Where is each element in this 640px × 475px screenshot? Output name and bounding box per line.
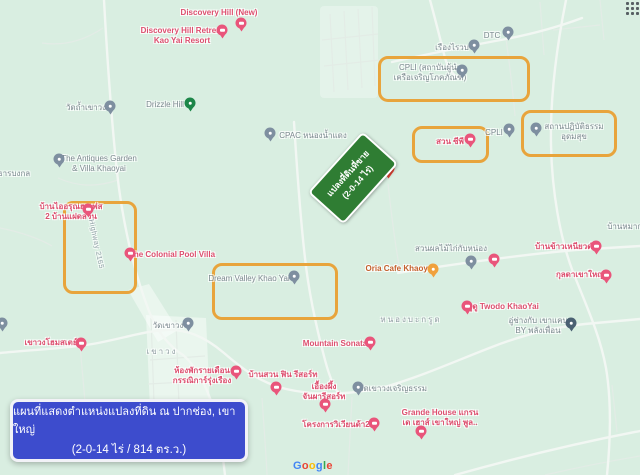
map-label-wat-khao-wong-charoen-tham[interactable]: วัดเขาวงเจริญธรรม (359, 384, 427, 394)
map-label-ban-khao-niao-dam[interactable]: บ้านข้าวเหนียวดำ (535, 242, 597, 252)
map-pin-meditation-center-udomsuk[interactable] (531, 123, 542, 134)
map-label-text: Oria Cafe Khaoyai (366, 264, 435, 274)
map-label-text: เอื้องผึ้ง (303, 382, 346, 392)
map-label-drizzle-hill[interactable]: Drizzle Hill (146, 100, 184, 110)
map-pin-dtc[interactable] (503, 27, 514, 38)
map-pin-discovery-hill-retreat[interactable] (217, 25, 228, 36)
map-pin-monthly-rooms-kannika[interactable] (231, 366, 242, 377)
map-pin-cpli[interactable] (504, 124, 515, 135)
map-label-text: วัดถ้ำเขาวง (66, 103, 106, 113)
map-pin-fruit-orchard[interactable] (466, 256, 477, 267)
google-logo-letter: e (326, 460, 332, 472)
grid-dots-icon[interactable] (626, 2, 639, 15)
map-label-text: Mountain Sonata (303, 339, 367, 349)
map-label-discovery-hill-retreat[interactable]: Discovery Hill RetreatKao Yai Resort (141, 26, 224, 46)
map-pin-cpli-institute[interactable] (457, 65, 468, 76)
map-label-text: CPAC หนองน้ำแดง (279, 131, 347, 141)
map-label-rueang-rai[interactable]: เรืองไรวบ (435, 43, 469, 53)
map-label-text: โครงการวิเวียนด้า2 (302, 420, 370, 430)
map-label-khao-wong-homestay[interactable]: เขาวงโฮมสเตย์ (24, 338, 77, 348)
google-logo-letter: o (309, 460, 316, 472)
map-label-text: เครือเจริญโภคภัณฑ์) (394, 73, 467, 83)
map-label-cpli-institute[interactable]: CPLI (สถาบันผู้นำเครือเจริญโภคภัณฑ์) (394, 63, 467, 83)
map-label-khao-wong-area[interactable]: เขาวง (146, 347, 177, 357)
google-logo-letter: g (316, 460, 323, 472)
map-label-fruit-orchard[interactable]: สวนผลไม้ไก่กับหน่อง (415, 244, 487, 254)
map-label-text: เขาวงโฮมสเตย์ (24, 338, 77, 348)
map-label-text: Drizzle Hill (146, 100, 184, 110)
map-label-text: บ้านข้าวเหนียวดำ (535, 242, 597, 252)
caption-box: แผนที่แสดงตำแหน่งแปลงที่ดิน ณ ปากช่อง, เ… (10, 399, 248, 462)
map-pin-suan-cp[interactable] (465, 134, 476, 145)
caption-line2: (2-0-14 ไร่ / 814 ตร.ว.) (72, 441, 187, 459)
map-label-text: The Colonial Pool Villa (129, 250, 215, 260)
map-label-meditation-center-udomsuk[interactable]: สถานปฏิบัติธรรมอุดมสุข (544, 122, 603, 142)
map-label-text: บ้านหมาก.. (607, 222, 640, 232)
map-label-suan-cp[interactable]: สวน ซีพี (436, 137, 464, 147)
map-pin-wat-khao-wong[interactable] (183, 318, 194, 329)
map-label-wat-tham-khao-wong[interactable]: วัดถ้ำเขาวง (66, 103, 106, 113)
map-label-text: CPLI (485, 128, 503, 138)
map-pin-twodo-khaoyai[interactable] (462, 301, 473, 312)
map-pin-oria-cafe-khaoyai[interactable] (428, 264, 439, 275)
map-label-text: Discovery Hill (New) (181, 8, 258, 18)
google-logo-letter: G (293, 460, 302, 472)
map-label-cpli[interactable]: CPLI (485, 128, 503, 138)
map-pin-rueang-rai[interactable] (469, 40, 480, 51)
map-pin-khao-wong-homestay[interactable] (76, 338, 87, 349)
map-pin-ban-suan-fin-resort[interactable] (271, 382, 282, 393)
map-label-monthly-rooms-kannika[interactable]: ห้องพักรายเดือนกรรณิการ์รุ่งเรือง (173, 366, 231, 386)
map-pin-ban-khao-niao-dam[interactable] (591, 241, 602, 252)
map-pin-viviente-2[interactable] (369, 418, 380, 429)
map-label-text: บ้านสวน ฟิน รีสอร์ท (248, 370, 317, 380)
map-label-text: วัดเขาวง (153, 321, 184, 331)
map-pin-colonial-pool-villa[interactable] (125, 248, 136, 259)
map-label-text: Discovery Hill Retreat (141, 26, 224, 36)
map-label-text: BY พลังเพื่อน (508, 326, 567, 336)
map-label-text: เขาวง (146, 347, 177, 357)
map-label-oria-cafe-khaoyai[interactable]: Oria Cafe Khaoyai (366, 264, 435, 274)
map-pin-ban-ai-arun[interactable] (83, 204, 94, 215)
map-label-antiques-garden-villa[interactable]: The Antiques Garden& Villa Khaoyai (61, 154, 137, 174)
highlight-box-dream-valley (212, 263, 338, 320)
map-pin-wat-khao-wong-charoen-tham[interactable] (353, 382, 364, 393)
map-label-ban-mak[interactable]: บ้านหมาก.. (607, 222, 640, 232)
map-label-dtc[interactable]: DTC (484, 31, 500, 41)
map-label-text: Grande House แกรน (402, 408, 479, 418)
map-label-dream-valley-khao-yai[interactable]: Dream Valley Khao Yai (208, 274, 289, 284)
map-label-text: กุลดาเขาใหญ่ (556, 270, 604, 280)
map-pin-ueang-phueng-chanpha-resort[interactable] (320, 399, 331, 410)
map-label-text: Kao Yai Resort (141, 36, 224, 46)
map-label-text: กรรณิการ์รุ่งเรือง (173, 376, 231, 386)
map-label-text: วัดเขาวงเจริญธรรม (359, 384, 427, 394)
map-label-cpac-nong-nam-daeng[interactable]: CPAC หนองน้ำแดง (279, 131, 347, 141)
map-canvas[interactable]: Discovery Hill (New)Discovery Hill Retre… (0, 0, 640, 475)
map-pin-cpac-nong-nam-daeng[interactable] (265, 128, 276, 139)
map-label-garage-khao-khaep[interactable]: อู่ช่างกับ เขาแคบBY พลังเพื่อน (508, 316, 567, 336)
map-label-text: สวนผลไม้ไก่กับหน่อง (415, 244, 487, 254)
map-label-text: & Villa Khaoyai (61, 164, 137, 174)
map-pin-drizzle-hill[interactable] (185, 98, 196, 109)
map-label-text: Dream Valley Khao Yai (208, 274, 289, 284)
map-label-text: The Antiques Garden (61, 154, 137, 164)
map-label-text: ห้องพักรายเดือน (173, 366, 231, 376)
map-label-grande-house[interactable]: Grande House แกรนเด เฮาส์ เขาใหญ่ พูล.. (402, 408, 479, 428)
google-logo-letter: o (302, 460, 309, 472)
map-label-wat-khao-wong[interactable]: วัดเขาวง (153, 321, 184, 331)
map-label-nong-ba-krut-area[interactable]: หนองบะกรูด (380, 315, 441, 325)
map-label-kunlada-khaoyai[interactable]: กุลดาเขาใหญ่ (556, 270, 604, 280)
lodging-pin-orchard[interactable] (489, 254, 500, 265)
map-label-text: CPLI (สถาบันผู้นำ (394, 63, 467, 73)
map-label-text: เด เฮาส์ เขาใหญ่ พูล.. (402, 418, 479, 428)
map-pin-discovery-hill-new[interactable] (236, 18, 247, 29)
map-pin-kunlada-khaoyai[interactable] (601, 270, 612, 281)
caption-line1: แผนที่แสดงตำแหน่งแปลงที่ดิน ณ ปากช่อง, เ… (13, 402, 245, 438)
map-label-text: DTC (484, 31, 500, 41)
map-label-text: ธารบงกล (0, 169, 30, 179)
map-pin-antiques-garden-villa[interactable] (54, 154, 65, 165)
map-label-text: อู่ช่างกับ เขาแคบ (508, 316, 567, 326)
map-pin-wat-tham-khao-wong[interactable] (105, 101, 116, 112)
map-label-text: ทูดู Twodo KhaoYai (467, 302, 539, 312)
map-pin-dream-valley-khao-yai[interactable] (289, 271, 300, 282)
map-pin-mountain-sonata[interactable] (365, 337, 376, 348)
map-label-than-bong-kol[interactable]: ธารบงกล (0, 169, 30, 179)
map-label-text: หนองบะกรูด (380, 315, 441, 325)
map-label-text: อุดมสุข (544, 132, 603, 142)
map-pin-grande-house[interactable] (416, 426, 427, 437)
map-label-text: สวน ซีพี (436, 137, 464, 147)
map-label-twodo-khaoyai[interactable]: ทูดู Twodo KhaoYai (467, 302, 539, 312)
map-label-mountain-sonata[interactable]: Mountain Sonata (303, 339, 367, 349)
map-label-colonial-pool-villa[interactable]: The Colonial Pool Villa (129, 250, 215, 260)
map-label-ban-suan-fin-resort[interactable]: บ้านสวน ฟิน รีสอร์ท (248, 370, 317, 380)
map-pin-garage-khao-khaep[interactable] (566, 318, 577, 329)
map-label-viviente-2[interactable]: โครงการวิเวียนด้า2 (302, 420, 370, 430)
map-label-text: เรืองไรวบ (435, 43, 469, 53)
map-label-text: สถานปฏิบัติธรรม (544, 122, 603, 132)
map-label-discovery-hill-new[interactable]: Discovery Hill (New) (181, 8, 258, 18)
google-logo: Google (293, 460, 333, 472)
